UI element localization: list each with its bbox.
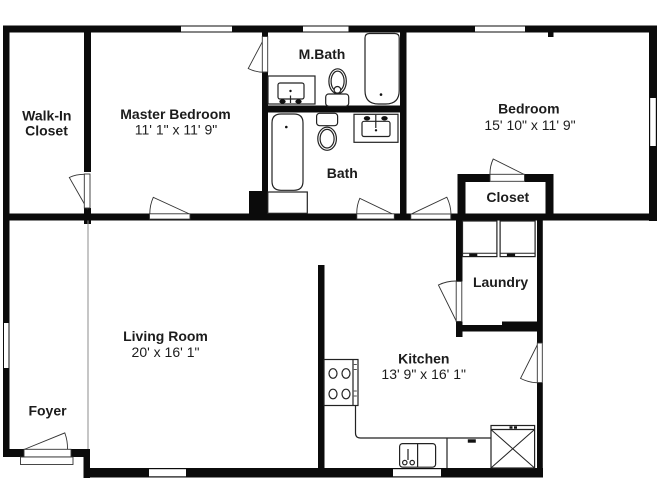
- svg-text:Kitchen: Kitchen: [398, 351, 449, 367]
- svg-text:13' 9" x 16' 1": 13' 9" x 16' 1": [381, 366, 466, 382]
- svg-text:Closet: Closet: [486, 189, 529, 205]
- svg-text:Foyer: Foyer: [28, 403, 67, 419]
- svg-text:Master Bedroom: Master Bedroom: [120, 106, 230, 122]
- svg-text:Living Room: Living Room: [123, 328, 208, 344]
- svg-text:Bath: Bath: [327, 165, 358, 181]
- svg-text:11' 1" x 11' 9": 11' 1" x 11' 9": [135, 122, 218, 138]
- svg-text:20' x 16' 1": 20' x 16' 1": [132, 344, 200, 360]
- svg-text:Closet: Closet: [25, 123, 68, 139]
- svg-text:Laundry: Laundry: [473, 274, 528, 290]
- svg-text:Bedroom: Bedroom: [498, 101, 559, 117]
- svg-text:15' 10" x 11' 9": 15' 10" x 11' 9": [484, 117, 575, 133]
- svg-text:M.Bath: M.Bath: [299, 46, 346, 62]
- svg-text:Walk-In: Walk-In: [22, 108, 71, 124]
